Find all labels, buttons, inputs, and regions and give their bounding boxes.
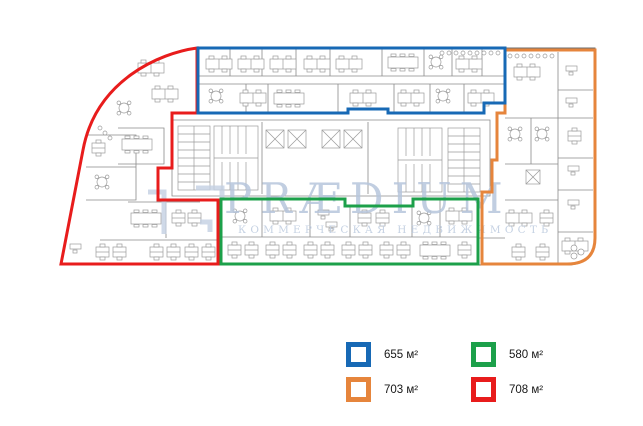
green-zone-area-label: 580 м² bbox=[509, 349, 543, 361]
orange-zone-swatch-icon bbox=[346, 377, 371, 402]
orange-zone-area-label: 703 м² bbox=[384, 384, 418, 396]
watermark-tagline: КОММЕРЧЕСКАЯ НЕДВИЖИМОСТЬ bbox=[238, 224, 552, 236]
red-zone-swatch-icon bbox=[471, 377, 496, 402]
blue-zone-swatch-icon bbox=[346, 342, 371, 367]
legend: 655 м² 580 м² 703 м² 708 м² bbox=[346, 342, 596, 402]
blue-zone-area-label: 655 м² bbox=[384, 349, 418, 361]
furniture-red-zone bbox=[70, 60, 215, 260]
legend-item-green: 580 м² bbox=[471, 342, 596, 367]
floor-plan: PRÆDIUM КОММЕРЧЕСКАЯ НЕДВИЖИМОСТЬ bbox=[0, 0, 643, 310]
legend-item-orange: 703 м² bbox=[346, 377, 471, 402]
green-zone-swatch-icon bbox=[471, 342, 496, 367]
floorplan-page: PRÆDIUM КОММЕРЧЕСКАЯ НЕДВИЖИМОСТЬ 655 м²… bbox=[0, 0, 643, 426]
legend-item-red: 708 м² bbox=[471, 377, 596, 402]
furniture-blue-zone bbox=[206, 51, 500, 107]
red-zone-area-label: 708 м² bbox=[509, 384, 543, 396]
legend-item-blue: 655 м² bbox=[346, 342, 471, 367]
zone-red-outline bbox=[61, 48, 218, 264]
